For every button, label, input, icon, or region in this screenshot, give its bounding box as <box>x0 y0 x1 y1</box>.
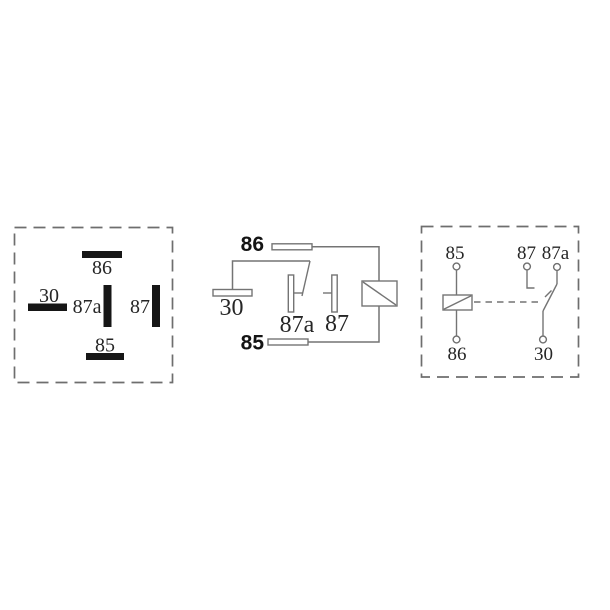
pin-87a-bar <box>104 285 112 327</box>
terminal-87-node <box>524 263 531 270</box>
wire-30-to-armature <box>233 261 311 290</box>
schematic-87-label: 87 <box>325 311 349 337</box>
schematic-30-label: 30 <box>220 295 244 321</box>
terminal-85-node <box>453 263 460 270</box>
pin-87-bar <box>152 285 160 327</box>
circuit-86-label: 86 <box>448 344 467 365</box>
relay-pinout-figure: 86 30 87a 87 85 86 85 30 <box>0 0 610 610</box>
pin-30-bar <box>28 304 67 312</box>
schematic-87a-label: 87a <box>280 312 315 338</box>
terminal-30-node <box>540 336 547 343</box>
circuit-schematic: 85 86 87 87a 30 <box>422 227 579 378</box>
schematic-85-label: 85 <box>241 332 265 355</box>
pin-view-box: 86 30 87a 87 85 <box>15 228 173 383</box>
pin-87a-label: 87a <box>73 296 102 318</box>
terminal-87a-node <box>554 264 561 271</box>
terminal-86-node <box>453 336 460 343</box>
pin-87-label: 87 <box>130 296 150 318</box>
terminal-85-bar <box>268 339 308 345</box>
contact-87a-bar <box>288 275 293 312</box>
pin-85-bar <box>86 353 124 360</box>
relay-diagram-canvas: 86 30 87a 87 85 86 85 30 <box>0 0 610 610</box>
circuit-87a-label: 87a <box>542 243 570 264</box>
terminal-86-bar <box>272 244 312 250</box>
circuit-85-label: 85 <box>446 243 465 264</box>
armature-blade-right <box>543 284 557 311</box>
circuit-30-label: 30 <box>534 344 553 365</box>
contact-87-bar <box>332 275 337 312</box>
schematic-86-label: 86 <box>241 233 264 256</box>
pin-86-label: 86 <box>92 257 112 279</box>
wire-87-contact <box>527 270 535 288</box>
wiring-schematic: 86 85 30 87a 87 <box>213 233 397 355</box>
armature-blade <box>302 261 310 296</box>
wire-86-to-coil <box>312 247 379 281</box>
circuit-87-label: 87 <box>517 243 536 264</box>
